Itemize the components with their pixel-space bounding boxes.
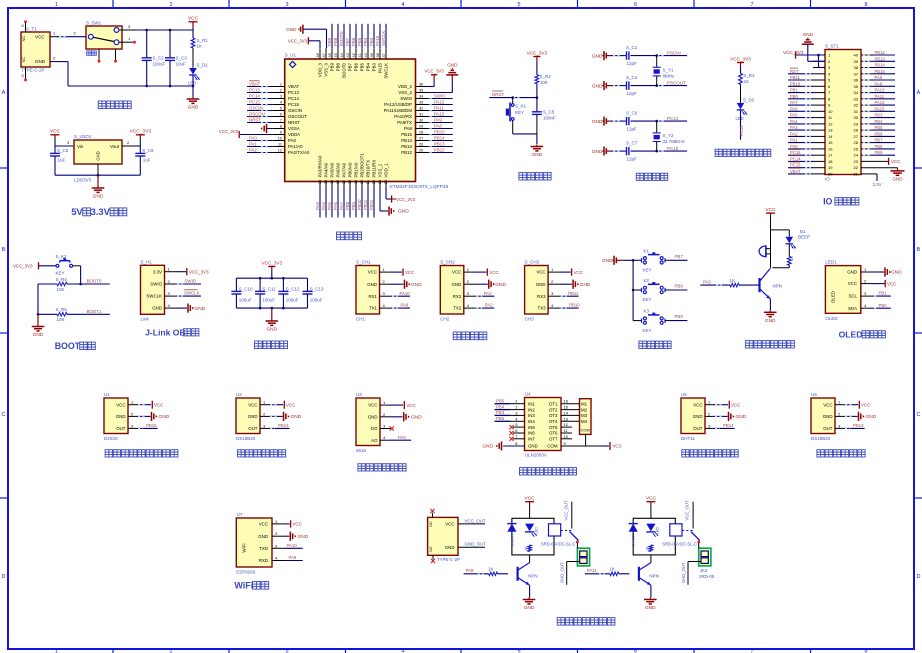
svg-text:PB5: PB5	[360, 62, 365, 71]
svg-text:1: 1	[55, 649, 58, 653]
svg-text:4: 4	[401, 649, 404, 653]
svg-text:NPN: NPN	[528, 574, 538, 579]
svg-text:S_D1: S_D1	[197, 63, 209, 68]
svg-text:OLED: OLED	[825, 316, 838, 321]
svg-text:PB0: PB0	[879, 303, 888, 308]
svg-text:PB10/TX: PB10/TX	[366, 160, 371, 178]
svg-text:GND: GND	[398, 209, 409, 215]
svg-text:22: 22	[854, 165, 859, 170]
svg-text:PSCIN: PSCIN	[667, 50, 681, 55]
svg-text:1K: 1K	[488, 567, 493, 572]
svg-text:S_U1: S_U1	[285, 53, 297, 58]
svg-text:PB12: PB12	[434, 148, 445, 153]
svg-text:100nF: 100nF	[543, 116, 556, 121]
svg-text:SWCLK: SWCLK	[146, 294, 162, 299]
svg-text:1N4007: 1N4007	[632, 534, 636, 547]
svg-text:25: 25	[419, 149, 423, 153]
svg-text:VSS_1: VSS_1	[378, 163, 383, 177]
svg-text:PA10: PA10	[434, 112, 445, 117]
svg-text:PA5: PA5	[703, 279, 712, 284]
svg-text:GND: GND	[195, 306, 206, 312]
svg-text:PB12: PB12	[401, 150, 412, 155]
svg-text:27: 27	[419, 137, 423, 141]
svg-text:PB15: PB15	[875, 69, 886, 74]
svg-text:VDDA: VDDA	[288, 132, 300, 137]
svg-text:12: 12	[564, 422, 569, 427]
svg-text:12pF: 12pF	[627, 91, 638, 96]
svg-text:SCL: SCL	[848, 294, 857, 299]
svg-text:B1: B1	[800, 229, 806, 234]
svg-text:GND: GND	[248, 414, 258, 419]
svg-text:VCC: VCC	[368, 270, 377, 275]
svg-text:PA2: PA2	[790, 131, 798, 136]
svg-text:45: 45	[334, 53, 338, 57]
svg-text:VCC: VCC	[259, 522, 268, 527]
svg-text:Vin: Vin	[77, 144, 84, 149]
svg-text:PA8: PA8	[466, 568, 475, 573]
svg-text:STM32F103C8T6_LQFP48: STM32F103C8T6_LQFP48	[390, 184, 449, 190]
svg-text:PA12/USB/DP: PA12/USB/DP	[384, 102, 412, 107]
svg-text:NRST: NRST	[249, 118, 261, 123]
svg-text:34: 34	[419, 95, 423, 99]
svg-text:PB0/A0: PB0/A0	[348, 162, 353, 177]
svg-text:33: 33	[854, 96, 859, 101]
svg-text:GND: GND	[159, 414, 170, 420]
svg-text:WiFi: WiFi	[234, 580, 253, 590]
svg-text:14: 14	[828, 134, 833, 139]
svg-text:3: 3	[285, 2, 288, 8]
svg-text:36: 36	[419, 83, 423, 87]
svg-text:GND_OUT: GND_OUT	[465, 542, 487, 547]
svg-text:OSCIN: OSCIN	[288, 108, 302, 113]
svg-text:ESP8266: ESP8266	[236, 570, 256, 575]
svg-text:OUT: OUT	[248, 426, 258, 431]
svg-text:IN3: IN3	[528, 413, 535, 418]
svg-text:GND: GND	[188, 105, 199, 111]
svg-text:JK3: JK3	[700, 568, 708, 573]
svg-text:17: 17	[342, 180, 346, 184]
svg-text:PA11/USB/DM: PA11/USB/DM	[384, 108, 413, 113]
svg-text:2: 2	[169, 649, 172, 653]
svg-text:28: 28	[419, 131, 423, 135]
svg-text:SWIO: SWIO	[400, 96, 412, 101]
svg-text:PB11: PB11	[790, 75, 801, 80]
svg-text:BOOT: BOOT	[55, 341, 81, 351]
svg-text:OUT: OUT	[693, 426, 703, 431]
svg-text:VCC: VCC	[887, 281, 896, 286]
svg-text:PB7: PB7	[875, 138, 884, 143]
svg-text:13: 13	[318, 180, 322, 184]
svg-text:DS18B20: DS18B20	[811, 436, 831, 441]
svg-text:VCC_3V3: VCC_3V3	[527, 50, 548, 55]
svg-text:GND: GND	[93, 194, 104, 200]
svg-text:PB8: PB8	[336, 62, 341, 71]
svg-text:VDD_1: VDD_1	[384, 163, 389, 178]
svg-text:8: 8	[864, 2, 867, 8]
svg-text:2: 2	[280, 89, 282, 93]
svg-text:31: 31	[854, 109, 859, 114]
svg-text:D203S: D203S	[104, 436, 118, 441]
svg-text:PA15: PA15	[378, 62, 383, 73]
svg-text:PB2/BOOT1: PB2/BOOT1	[360, 153, 365, 178]
svg-text:34: 34	[854, 90, 859, 95]
svg-text:30: 30	[419, 119, 423, 123]
svg-text:8: 8	[864, 649, 867, 653]
svg-text:10uF: 10uF	[176, 62, 187, 67]
svg-text:OT4: OT4	[549, 419, 558, 424]
svg-text:S_CH2: S_CH2	[440, 259, 455, 264]
svg-text:DHT11: DHT11	[681, 436, 695, 441]
svg-text:S_C10: S_C10	[239, 287, 253, 292]
svg-text:LDO3V3: LDO3V3	[74, 178, 92, 183]
svg-text:VSSA: VSSA	[288, 126, 300, 131]
svg-text:PB5: PB5	[357, 37, 362, 46]
svg-text:LED1: LED1	[825, 260, 837, 265]
svg-text:16: 16	[828, 146, 833, 151]
svg-text:PB4: PB4	[496, 404, 505, 409]
svg-text:M1: M1	[581, 401, 588, 406]
svg-text:24: 24	[854, 153, 859, 158]
svg-text:5: 5	[280, 107, 282, 111]
svg-text:PB6: PB6	[875, 131, 884, 136]
svg-text:1K: 1K	[744, 79, 750, 84]
svg-text:SWIO: SWIO	[185, 279, 197, 284]
svg-text:PB0: PB0	[345, 201, 350, 210]
svg-text:S_C9: S_C9	[142, 148, 154, 153]
svg-text:S_H1: S_H1	[141, 259, 153, 264]
svg-text:PA3: PA3	[790, 125, 798, 130]
svg-text:PB10: PB10	[569, 303, 580, 308]
svg-text:7: 7	[750, 649, 753, 653]
svg-text:PC13: PC13	[249, 88, 260, 93]
svg-text:PB11: PB11	[363, 199, 368, 210]
svg-text:Vout: Vout	[110, 144, 120, 149]
svg-text:PB15: PB15	[434, 130, 445, 135]
svg-text:23: 23	[854, 159, 859, 164]
svg-text:S_CH1: S_CH1	[356, 259, 371, 264]
svg-text:NRST: NRST	[288, 120, 300, 125]
svg-text:NC: NC	[428, 546, 433, 552]
svg-text:GND: GND	[580, 282, 591, 288]
svg-text:18: 18	[348, 180, 352, 184]
svg-text:40: 40	[854, 53, 859, 58]
svg-text:PB1: PB1	[351, 201, 356, 210]
svg-text:S_D2: S_D2	[743, 98, 755, 103]
svg-text:14: 14	[324, 180, 328, 184]
svg-text:32: 32	[419, 107, 423, 111]
svg-text:PA1: PA1	[790, 138, 798, 143]
svg-text:RX3: RX3	[537, 294, 546, 299]
svg-text:PA5/A0: PA5/A0	[330, 162, 335, 177]
svg-text:U1: U1	[104, 392, 110, 397]
svg-text:PA15: PA15	[375, 35, 380, 46]
svg-text:CH3: CH3	[525, 317, 534, 322]
svg-text:12: 12	[278, 149, 282, 153]
svg-text:PB7: PB7	[345, 37, 350, 46]
svg-text:S_K1: S_K1	[515, 104, 527, 109]
svg-text:GND: GND	[823, 414, 833, 419]
svg-text:S_R4: S_R4	[56, 277, 68, 282]
svg-text:PA11: PA11	[875, 94, 885, 99]
svg-text:GND: GND	[891, 270, 902, 276]
svg-text:PA2/TX/A0: PA2/TX/A0	[288, 150, 310, 155]
svg-text:U2: U2	[236, 392, 242, 397]
svg-text:33: 33	[419, 101, 423, 105]
svg-text:K3: K3	[644, 309, 650, 314]
svg-text:35: 35	[419, 89, 423, 93]
svg-text:PB11: PB11	[369, 199, 374, 210]
svg-text:GND: GND	[528, 444, 538, 449]
svg-text:VCC_3V3: VCC_3V3	[425, 69, 445, 74]
svg-text:GND: GND	[803, 32, 814, 37]
svg-text:CH1: CH1	[356, 317, 365, 322]
svg-text:U7: U7	[237, 512, 243, 517]
svg-text:PB1: PB1	[879, 291, 888, 296]
svg-text:LED: LED	[736, 116, 744, 121]
svg-text:GND: GND	[892, 177, 903, 182]
svg-text:IN2: IN2	[528, 407, 535, 412]
svg-text:PA0: PA0	[398, 435, 406, 440]
svg-text:GND: GND	[33, 332, 44, 338]
svg-text:GND: GND	[152, 306, 162, 311]
svg-text:PB1: PB1	[790, 88, 799, 93]
svg-text:100uF: 100uF	[153, 62, 166, 67]
svg-text:GND: GND	[602, 258, 613, 264]
svg-text:GND: GND	[411, 415, 422, 421]
svg-text:GND: GND	[866, 414, 877, 420]
svg-text:A: A	[917, 90, 921, 96]
svg-text:21: 21	[366, 180, 370, 184]
svg-text:GND_OUT: GND_OUT	[681, 562, 686, 583]
svg-text:14: 14	[564, 410, 569, 415]
svg-text:TX2: TX2	[453, 306, 462, 311]
svg-text:25: 25	[854, 146, 859, 151]
svg-text:11: 11	[278, 143, 282, 147]
svg-text:VCC: VCC	[405, 270, 414, 275]
svg-text:PB3: PB3	[369, 37, 374, 46]
svg-text:GND: GND	[286, 27, 297, 32]
svg-text:D: D	[917, 574, 921, 580]
svg-text:PA8: PA8	[875, 75, 883, 80]
svg-text:PB5: PB5	[875, 125, 884, 130]
svg-text:4: 4	[401, 2, 404, 8]
svg-text:VCC: VCC	[368, 403, 377, 408]
svg-text:3.3V: 3.3V	[872, 182, 881, 187]
svg-text:PA5: PA5	[327, 202, 332, 210]
svg-text:PC15: PC15	[288, 102, 300, 107]
svg-text:PB7: PB7	[675, 254, 684, 259]
svg-text:PB10: PB10	[790, 81, 801, 86]
svg-text:1N4007: 1N4007	[510, 534, 514, 547]
svg-text:PB3: PB3	[372, 62, 377, 71]
svg-text:PB14: PB14	[401, 138, 412, 143]
svg-text:3: 3	[285, 649, 288, 653]
svg-text:19: 19	[354, 180, 358, 184]
svg-text:1uF: 1uF	[58, 158, 66, 163]
svg-text:VCC: VCC	[50, 129, 61, 135]
svg-text:PA0: PA0	[288, 138, 297, 143]
svg-text:32.768KHz: 32.768KHz	[663, 139, 686, 144]
svg-text:PB9: PB9	[875, 150, 884, 155]
svg-text:S_C13: S_C13	[310, 287, 324, 292]
svg-text:3.3V: 3.3V	[153, 269, 162, 274]
svg-text:BOOT0: BOOT0	[339, 31, 344, 46]
svg-text:15: 15	[828, 140, 833, 145]
svg-text:28: 28	[854, 128, 859, 133]
svg-text:38: 38	[376, 53, 380, 57]
svg-text:PA9: PA9	[289, 555, 297, 560]
svg-text:S_C11: S_C11	[262, 287, 276, 292]
svg-text:26: 26	[854, 140, 859, 145]
svg-text:PA6: PA6	[790, 106, 798, 111]
svg-text:PA4: PA4	[790, 119, 798, 124]
svg-text:S_ST1: S_ST1	[825, 44, 839, 49]
svg-text:B: B	[917, 247, 921, 253]
svg-text:S_T1: S_T1	[26, 27, 37, 32]
svg-text:GND: GND	[524, 605, 535, 611]
svg-text:A: A	[2, 90, 6, 96]
svg-text:6: 6	[634, 649, 637, 653]
svg-text:VCC: VCC	[286, 402, 295, 407]
svg-text:GND: GND	[447, 63, 458, 68]
svg-text:PB8: PB8	[333, 37, 338, 46]
svg-text:13: 13	[564, 416, 569, 421]
svg-text:SDA: SDA	[848, 306, 857, 311]
svg-text:RXD: RXD	[259, 558, 268, 563]
svg-text:PA4/A0: PA4/A0	[324, 162, 329, 177]
svg-text:VCC: VCC	[613, 444, 622, 449]
svg-text:PA10/RX: PA10/RX	[394, 114, 412, 119]
svg-text:PA8: PA8	[434, 124, 442, 129]
svg-text:PC14: PC14	[249, 94, 260, 99]
svg-text:10: 10	[278, 137, 282, 141]
svg-text:6: 6	[280, 113, 282, 117]
svg-text:PA12: PA12	[434, 100, 445, 105]
svg-text:5: 5	[517, 2, 520, 8]
svg-text:27: 27	[854, 134, 859, 139]
svg-text:SWCLK: SWCLK	[184, 291, 200, 296]
svg-text:PA11: PA11	[587, 568, 598, 573]
svg-text:PB7: PB7	[348, 62, 353, 71]
svg-text:VSS_2: VSS_2	[398, 90, 412, 95]
svg-text:PB15: PB15	[146, 423, 157, 428]
svg-text:TYPE-C-2P: TYPE-C-2P	[437, 557, 460, 562]
svg-text:KEY: KEY	[643, 328, 652, 333]
svg-text:37: 37	[854, 71, 859, 76]
svg-text:5516: 5516	[356, 448, 367, 453]
svg-text:PC14: PC14	[790, 156, 801, 161]
svg-text:SWIO: SWIO	[150, 282, 162, 287]
svg-text:GND: GND	[536, 282, 546, 287]
svg-text:39: 39	[854, 59, 859, 64]
svg-text:PB3: PB3	[496, 410, 505, 415]
svg-text:TX1: TX1	[369, 306, 378, 311]
svg-text:VCC: VCC	[293, 522, 302, 527]
svg-text:42: 42	[352, 53, 356, 57]
svg-text:OSCOUT: OSCOUT	[288, 114, 307, 119]
svg-text:PB4: PB4	[363, 37, 368, 46]
svg-text:32: 32	[854, 103, 859, 108]
svg-text:OUT: OUT	[116, 426, 126, 431]
svg-text:PA0: PA0	[249, 136, 257, 141]
svg-text:GND: GND	[258, 534, 268, 539]
svg-text:1: 1	[280, 83, 282, 87]
svg-text:VCC: VCC	[154, 402, 163, 407]
svg-text:VCC: VCC	[861, 402, 870, 407]
svg-text:VCC: VCC	[536, 270, 545, 275]
svg-text:100uF: 100uF	[310, 298, 323, 303]
svg-text:WIFI: WIFI	[242, 543, 247, 552]
svg-text:24: 24	[384, 180, 388, 184]
svg-text:100uF: 100uF	[286, 298, 299, 303]
svg-text:PB11/RX: PB11/RX	[372, 160, 377, 178]
svg-text:PC13: PC13	[790, 163, 801, 168]
svg-text:BOOT0: BOOT0	[87, 279, 102, 284]
svg-text:6: 6	[634, 2, 637, 8]
svg-text:NRST: NRST	[492, 92, 505, 97]
svg-text:DO: DO	[371, 426, 378, 431]
svg-text:PB5: PB5	[496, 399, 505, 404]
svg-text:PA7: PA7	[790, 100, 798, 105]
svg-text:31: 31	[419, 113, 423, 117]
svg-text:COM: COM	[547, 444, 558, 449]
svg-text:GND: GND	[367, 282, 377, 287]
svg-text:VCC: VCC	[452, 270, 461, 275]
svg-text:PC15: PC15	[667, 146, 679, 151]
svg-text:CH2: CH2	[440, 317, 449, 322]
svg-text:OUT: OUT	[823, 426, 833, 431]
svg-text:VCC_OUT: VCC_OUT	[465, 518, 486, 523]
svg-text:12pF: 12pF	[627, 61, 638, 66]
svg-text:S_C2: S_C2	[153, 56, 165, 61]
svg-text:PA0: PA0	[790, 144, 798, 149]
svg-text:1uF: 1uF	[143, 158, 151, 163]
svg-text:23: 23	[378, 180, 382, 184]
svg-text:S_R3: S_R3	[743, 73, 755, 78]
svg-text:PA10: PA10	[287, 543, 298, 548]
svg-text:IO: IO	[823, 196, 832, 206]
svg-text:37: 37	[382, 53, 386, 57]
svg-text:VCC: VCC	[445, 522, 454, 527]
svg-text:ULN2003A: ULN2003A	[525, 453, 547, 458]
svg-text:IN7: IN7	[528, 437, 535, 442]
svg-text:1K: 1K	[609, 567, 614, 572]
svg-text:VCC_3V3: VCC_3V3	[783, 50, 804, 55]
svg-text:VCC: VCC	[489, 270, 498, 275]
svg-text:U4: U4	[525, 391, 531, 396]
svg-text:1K: 1K	[197, 44, 203, 49]
svg-text:PB13: PB13	[853, 423, 864, 428]
svg-text:VCC_3V3: VCC_3V3	[219, 129, 239, 134]
svg-text:19: 19	[828, 165, 833, 170]
svg-text:GND: GND	[482, 444, 493, 450]
svg-text:PB9: PB9	[330, 62, 335, 71]
svg-text:PC15: PC15	[249, 100, 260, 105]
svg-text:C: C	[917, 412, 921, 418]
svg-text:36: 36	[854, 78, 859, 83]
svg-text:PC13: PC13	[288, 90, 300, 95]
svg-text:7: 7	[750, 2, 753, 8]
svg-text:GND: GND	[452, 282, 462, 287]
svg-text:PA12: PA12	[875, 100, 886, 105]
svg-text:OLED: OLED	[839, 329, 863, 339]
svg-text:K1: K1	[644, 248, 650, 253]
svg-text:VCC_3V3: VCC_3V3	[130, 129, 152, 135]
svg-text:GND: GND	[116, 414, 126, 419]
svg-text:20: 20	[360, 180, 364, 184]
svg-text:RX2: RX2	[453, 294, 462, 299]
svg-text:5V: 5V	[71, 206, 83, 217]
